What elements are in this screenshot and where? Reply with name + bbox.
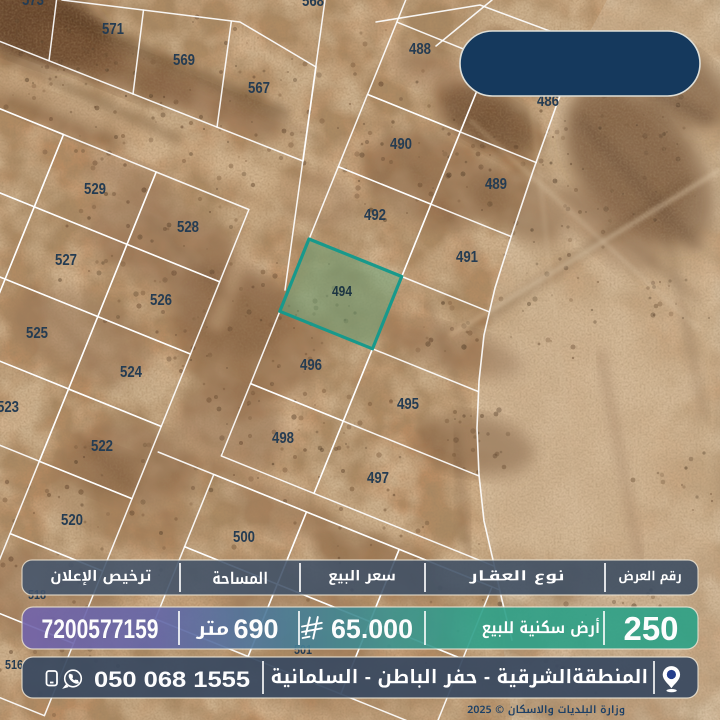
svg-text:525: 525: [26, 325, 48, 342]
svg-text:526: 526: [150, 292, 172, 309]
svg-text:488: 488: [409, 41, 431, 58]
svg-text:498: 498: [272, 430, 294, 447]
svg-text:7200577159: 7200577159: [42, 614, 159, 644]
svg-text:496: 496: [300, 357, 322, 374]
svg-text:490: 490: [390, 136, 412, 153]
svg-text:495: 495: [397, 396, 419, 413]
svg-text:523: 523: [0, 399, 19, 416]
svg-text:491: 491: [456, 249, 478, 266]
svg-text:250: 250: [624, 610, 679, 647]
svg-text:528: 528: [177, 219, 199, 236]
svg-text:489: 489: [485, 176, 507, 193]
svg-text:050 068 1555: 050 068 1555: [94, 667, 250, 692]
svg-text:568: 568: [302, 0, 324, 10]
svg-text:529: 529: [84, 181, 106, 198]
svg-text:65.000: 65.000: [331, 614, 413, 644]
svg-text:497: 497: [367, 470, 389, 487]
svg-text:520: 520: [61, 512, 83, 529]
svg-text:690: 690: [234, 614, 279, 644]
svg-text:522: 522: [91, 438, 113, 455]
svg-text:494: 494: [332, 284, 352, 300]
svg-text:569: 569: [173, 52, 195, 69]
svg-text:571: 571: [102, 21, 124, 38]
svg-text:492: 492: [364, 207, 386, 224]
svg-text:524: 524: [120, 364, 142, 381]
svg-text:567: 567: [248, 80, 270, 97]
svg-text:500: 500: [233, 529, 255, 546]
svg-text:573: 573: [22, 0, 44, 9]
svg-text:516: 516: [5, 657, 23, 672]
svg-text:527: 527: [55, 252, 77, 269]
